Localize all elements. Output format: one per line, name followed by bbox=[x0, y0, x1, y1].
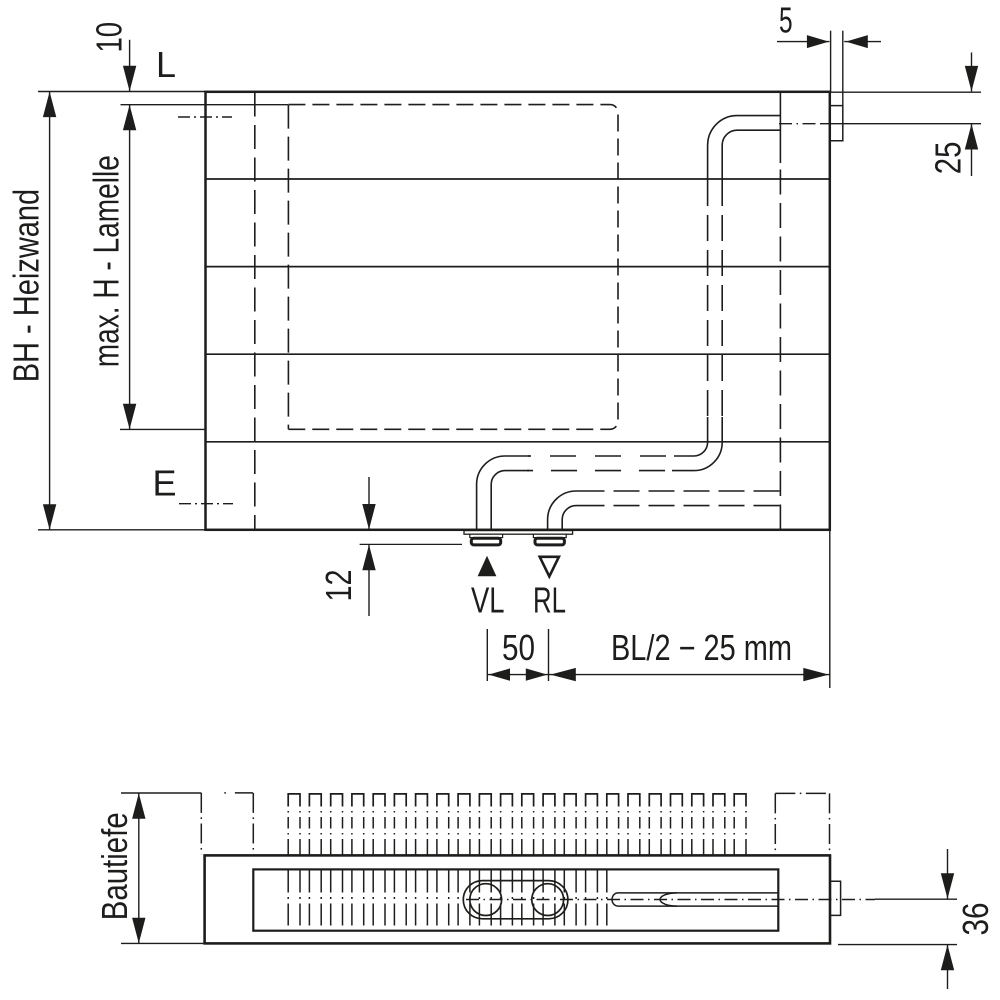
svg-text:max. H - Lamelle: max. H - Lamelle bbox=[86, 155, 127, 367]
svg-text:36: 36 bbox=[955, 903, 996, 936]
svg-text:BH - Heizwand: BH - Heizwand bbox=[6, 189, 47, 383]
svg-text:Bautiefe: Bautiefe bbox=[94, 812, 135, 920]
svg-text:10: 10 bbox=[89, 22, 130, 53]
svg-text:VL: VL bbox=[471, 579, 505, 620]
svg-text:50: 50 bbox=[502, 627, 535, 668]
svg-text:12: 12 bbox=[318, 570, 359, 602]
svg-text:BL/2 − 25 mm: BL/2 − 25 mm bbox=[611, 627, 792, 668]
svg-text:25: 25 bbox=[927, 142, 968, 175]
svg-text:5: 5 bbox=[779, 0, 793, 40]
svg-text:RL: RL bbox=[533, 579, 566, 620]
svg-text:L: L bbox=[156, 44, 176, 85]
svg-text:E: E bbox=[153, 463, 177, 504]
